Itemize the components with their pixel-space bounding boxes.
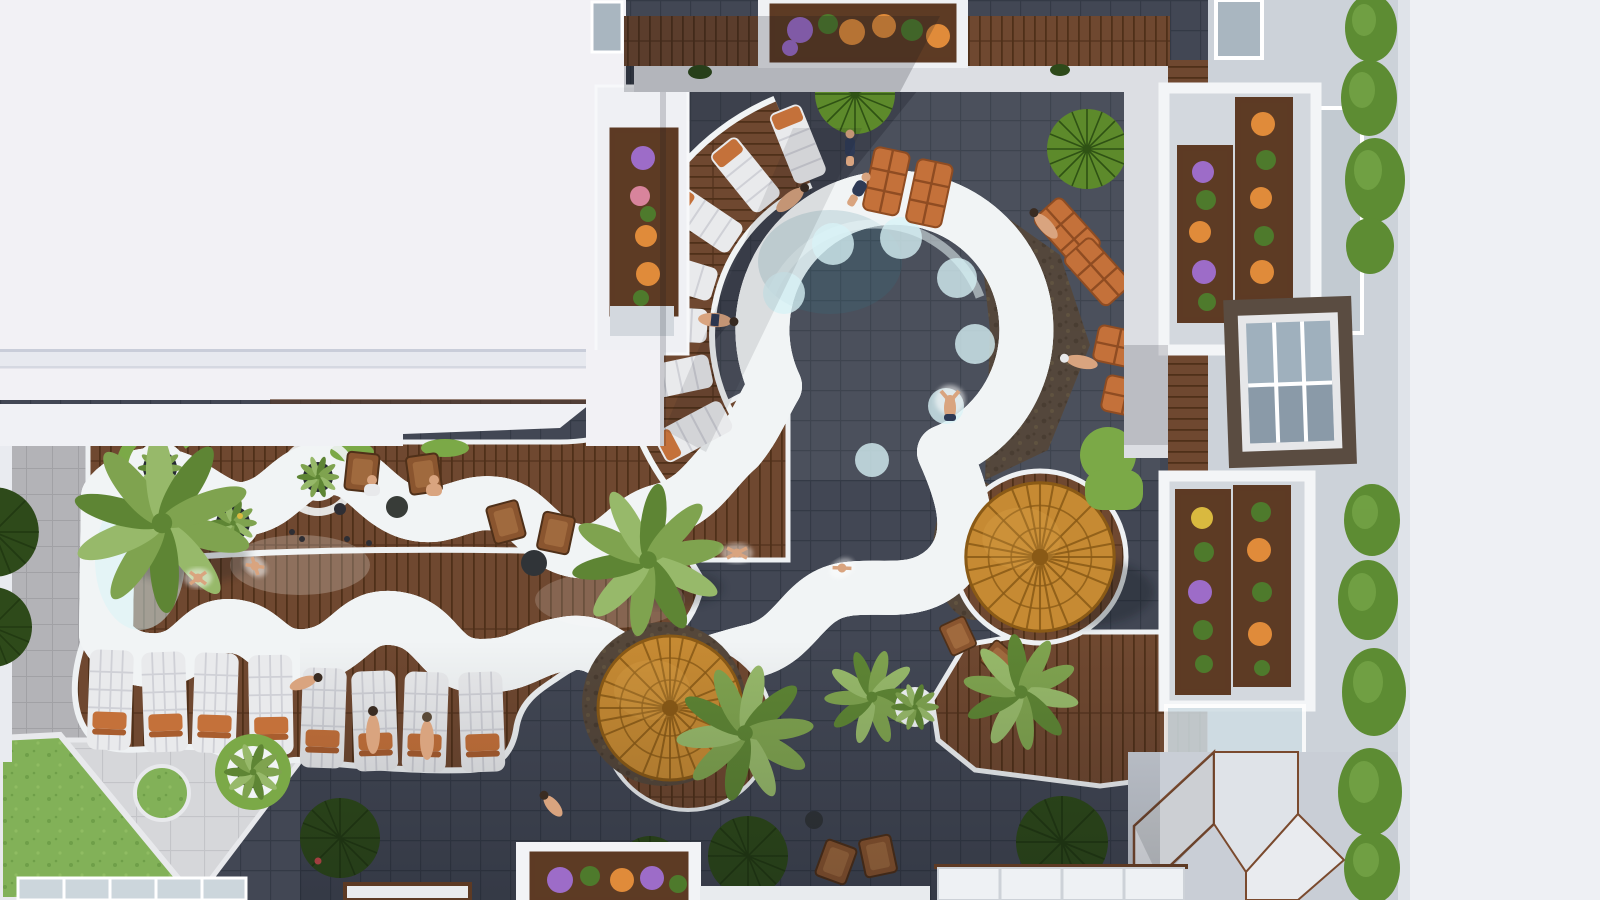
sun-lounger [87, 649, 134, 750]
white-roof [0, 0, 590, 350]
sun-lounger [192, 652, 239, 753]
bottom-ambient-shade [300, 640, 1160, 900]
framed-window [1223, 296, 1357, 468]
roof-strip [700, 886, 930, 900]
shadow-on-band [624, 16, 940, 92]
grass-circle [135, 766, 189, 820]
top-left-building [0, 0, 688, 446]
roof-edge-shade [1398, 0, 1410, 900]
facade-shadow [1124, 345, 1168, 445]
sun-lounger [141, 651, 188, 752]
white-roof-right [1398, 0, 1600, 900]
right-building [1124, 0, 1600, 900]
wooden-armchair [536, 511, 575, 555]
plant-tuft [1050, 64, 1070, 76]
stool [334, 503, 346, 515]
glass-skylight-band [18, 878, 246, 900]
scene-canvas [0, 0, 1600, 900]
window [592, 2, 622, 52]
roof-step-band [0, 350, 590, 366]
flower-planter-bottom [516, 842, 701, 900]
timber-trim [270, 399, 590, 404]
swimmer [184, 568, 212, 588]
roof-seam [0, 349, 590, 352]
grass-patch [1085, 470, 1143, 510]
coffee-table [521, 550, 547, 576]
coffee-table [386, 496, 408, 518]
balcony-lower [1164, 476, 1310, 706]
planter-edge [345, 884, 470, 900]
window [1216, 0, 1262, 58]
glass-balustrade [1166, 706, 1304, 758]
green-parasol-canopy [1047, 109, 1127, 189]
aerial-resort-courtyard-photo [0, 0, 1600, 900]
swimmer [721, 543, 753, 563]
